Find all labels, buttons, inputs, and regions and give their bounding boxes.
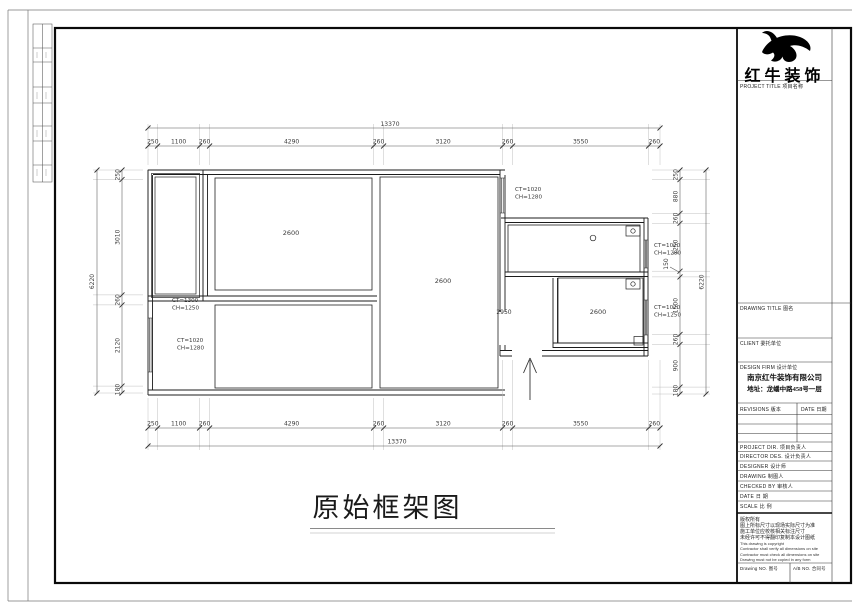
dim-label: 260 xyxy=(115,294,122,306)
entry-arrow xyxy=(524,358,537,400)
title-underline xyxy=(310,529,555,534)
revisions-label: REVISIONS 版本 xyxy=(740,406,781,413)
dim-label: 4290 xyxy=(284,139,299,146)
revision-date-label: DATE 日期 xyxy=(801,406,827,413)
dim-label: 3120 xyxy=(435,139,450,146)
director-design-row: DIRECTOR DES. 设计负责人 xyxy=(740,453,811,460)
dimension-ticks xyxy=(95,126,709,449)
dim-label: 3010 xyxy=(115,229,122,244)
dim-label: 260 xyxy=(673,212,680,224)
extension-lines xyxy=(93,124,710,450)
window-tag: CT=1300 xyxy=(172,298,199,304)
dim-label: 260 xyxy=(373,421,385,428)
window-tag: CH=1250 xyxy=(172,306,199,312)
design-firm-name: 南京红牛装饰有限公司 xyxy=(737,372,832,383)
dim-label: 6220 xyxy=(699,274,706,289)
dim-label: 250 xyxy=(147,139,159,146)
designer-row: DESIGNER 设计师 xyxy=(740,463,786,470)
window-tag: CT=1020 xyxy=(654,243,681,249)
dim-label: 260 xyxy=(373,139,385,146)
copyright-note-en: Contractor shall verify all dimensions o… xyxy=(740,546,818,551)
scale-row: SCALE 比 例 xyxy=(740,503,772,510)
project-director-row: PROJECT DIR. 项目负责人 xyxy=(740,444,806,451)
drawing-title-label: DRAWING TITLE 图名 xyxy=(740,305,793,312)
ceiling-point xyxy=(590,235,596,241)
copyright-note-en: Drawing must not be copied in any form xyxy=(740,557,810,562)
dim-label: 3550 xyxy=(573,421,588,428)
dim-label: 260 xyxy=(502,421,514,428)
dim-label: 250 xyxy=(673,169,680,181)
dim-label: 13370 xyxy=(380,121,399,128)
dim-label: 260 xyxy=(649,139,661,146)
rednbull-logo-icon xyxy=(762,31,811,62)
dim-label: 13370 xyxy=(387,439,406,446)
dim-labels-left: 6220 250 3010 260 2120 180 xyxy=(89,169,122,395)
dim-label: 150 xyxy=(663,258,670,270)
room-label: 2600 xyxy=(435,277,452,285)
dim-label: 260 xyxy=(502,139,514,146)
window-tags: CT=1300 CH=1250 CT=1020 CH=1280 CT=1020 … xyxy=(172,187,681,352)
dim-label: 180 xyxy=(673,385,680,397)
design-firm-label: DESIGN FIRM 设计单位 xyxy=(740,364,797,371)
design-firm-address: 地址：龙蟠中路458号一层 xyxy=(737,383,832,393)
room-bottomleft xyxy=(215,305,372,388)
window-tag: CT=1020 xyxy=(177,338,204,344)
dim-label: 4290 xyxy=(284,421,299,428)
dim-label: 180 xyxy=(115,384,122,396)
project-title-label: PROJECT TITLE 项目名称 xyxy=(740,83,803,90)
dim-label: 250 xyxy=(147,421,159,428)
drawing-row: DRAWING 制图人 xyxy=(740,473,784,480)
room-label: 2600 xyxy=(283,229,300,237)
dim-label: 900 xyxy=(673,360,680,372)
dim-label: 260 xyxy=(199,421,211,428)
contract-no-label: A/B NO. 合同号 xyxy=(793,566,826,572)
dim-label: 6220 xyxy=(89,274,96,289)
window-tag: CT=1020 xyxy=(654,305,681,311)
window-tag: CH=1280 xyxy=(515,195,542,201)
dim-labels-top: 13370 250 1100 260 4290 260 3120 260 355… xyxy=(147,121,660,146)
cad-sheet: 13370 250 1100 260 4290 260 3120 260 355… xyxy=(0,0,860,608)
window-tag: CH=1280 xyxy=(177,346,204,352)
dim-label: 1100 xyxy=(171,139,186,146)
dimension-lines xyxy=(97,128,706,446)
drawing-title: 原始框架图 xyxy=(280,486,495,525)
window-tag: CT=1020 xyxy=(515,187,542,193)
dim-label: 260 xyxy=(199,139,211,146)
window-tag: CH=1250 xyxy=(654,313,681,319)
balcony xyxy=(148,170,203,301)
room-label: 2600 xyxy=(590,308,607,316)
drawing-no-label: Drawing NO. 图号 xyxy=(740,566,778,572)
dim-label: 3550 xyxy=(573,139,588,146)
dim-label: 250 xyxy=(115,169,122,181)
client-label: CLIENT 委托单位 xyxy=(740,340,781,347)
window-tag: CH=1280 xyxy=(654,251,681,257)
flue-boxes xyxy=(590,226,643,345)
hall-dim-label: 2950 xyxy=(496,309,511,316)
checked-by-row: CHECKED BY 审核人 xyxy=(740,483,793,490)
room-kitchen xyxy=(508,225,640,272)
dim-label: 1100 xyxy=(171,421,186,428)
fold-mark-strip xyxy=(33,24,52,182)
copyright-note-en: Contractor must check all dimensions on … xyxy=(740,552,819,557)
dim-label: 880 xyxy=(673,190,680,202)
dim-label: 3120 xyxy=(435,421,450,428)
dim-labels-right: 6220 250 880 260 1250 150 1500 260 900 1… xyxy=(663,169,706,396)
dim-label: 2120 xyxy=(115,338,122,353)
dim-label: 260 xyxy=(673,333,680,345)
plan-walls xyxy=(148,170,648,395)
copyright-note-en: This drawing is copyright xyxy=(740,541,784,546)
dim-label: 260 xyxy=(649,421,661,428)
dim-labels-bottom: 13370 250 1100 260 4290 260 3120 260 355… xyxy=(147,421,660,446)
date-row: DATE 日 期 xyxy=(740,493,768,500)
